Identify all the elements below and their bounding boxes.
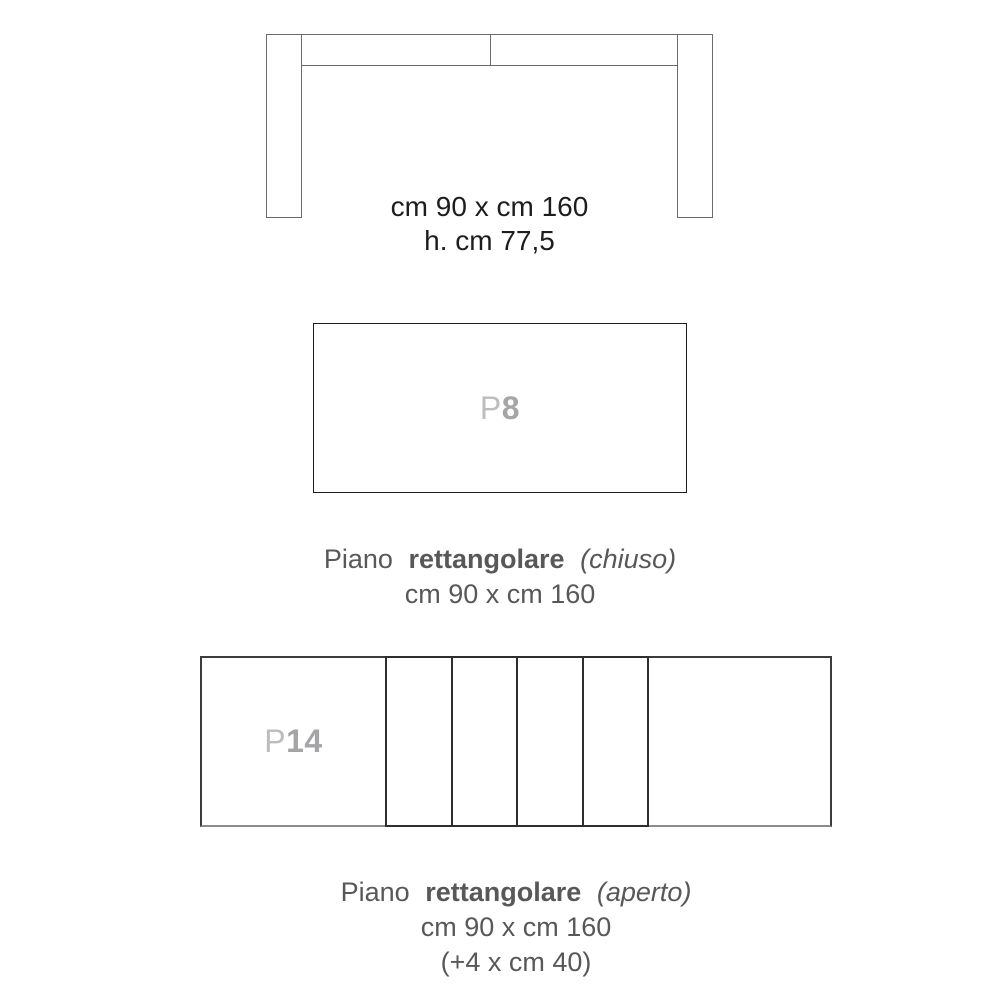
open-caption-extension: (+4 x cm 40): [16, 945, 1000, 980]
extension-leaf-panel: [516, 656, 584, 827]
tabletop-band: [301, 34, 678, 66]
elevation-dimension-size: cm 90 x cm 160: [266, 190, 713, 224]
closed-code-label: P8: [480, 390, 520, 427]
elevation-dimensions: cm 90 x cm 160 h. cm 77,5: [266, 190, 713, 258]
open-caption-word-aperto: (aperto): [597, 877, 692, 907]
open-caption: Piano rettangolare (aperto) cm 90 x cm 1…: [16, 875, 1000, 980]
extension-leaves-block: [385, 656, 649, 827]
closed-caption-dimensions: cm 90 x cm 160: [0, 577, 1000, 612]
extension-leaf-panel: [582, 656, 650, 827]
elevation-dimension-height: h. cm 77,5: [266, 224, 713, 258]
open-left-panel: P14: [202, 658, 385, 825]
closed-caption-word-rettangolare: rettangolare: [408, 544, 564, 574]
closed-caption-word-piano: Piano: [324, 544, 393, 574]
extension-leaf-panel: [385, 656, 453, 827]
closed-caption: Piano rettangolare (chiuso) cm 90 x cm 1…: [0, 542, 1000, 612]
closed-top-view-rect: P8: [313, 323, 687, 493]
open-code-label: P14: [264, 723, 322, 760]
closed-code-number: 8: [502, 390, 520, 426]
open-caption-dimensions: cm 90 x cm 160: [16, 910, 1000, 945]
tabletop-center-split-line: [490, 35, 491, 65]
diagram-canvas: cm 90 x cm 160 h. cm 77,5 P8 Piano retta…: [0, 0, 1000, 1000]
closed-caption-title: Piano rettangolare (chiuso): [0, 542, 1000, 577]
closed-code-prefix: P: [480, 390, 502, 426]
open-caption-word-rettangolare: rettangolare: [425, 877, 581, 907]
open-top-view-rect: P14: [200, 656, 832, 827]
extension-leaf-panel: [451, 656, 519, 827]
open-code-number: 14: [286, 723, 323, 759]
open-code-prefix: P: [264, 723, 286, 759]
closed-caption-word-chiuso: (chiuso): [580, 544, 676, 574]
open-caption-word-piano: Piano: [341, 877, 410, 907]
open-caption-title: Piano rettangolare (aperto): [16, 875, 1000, 910]
